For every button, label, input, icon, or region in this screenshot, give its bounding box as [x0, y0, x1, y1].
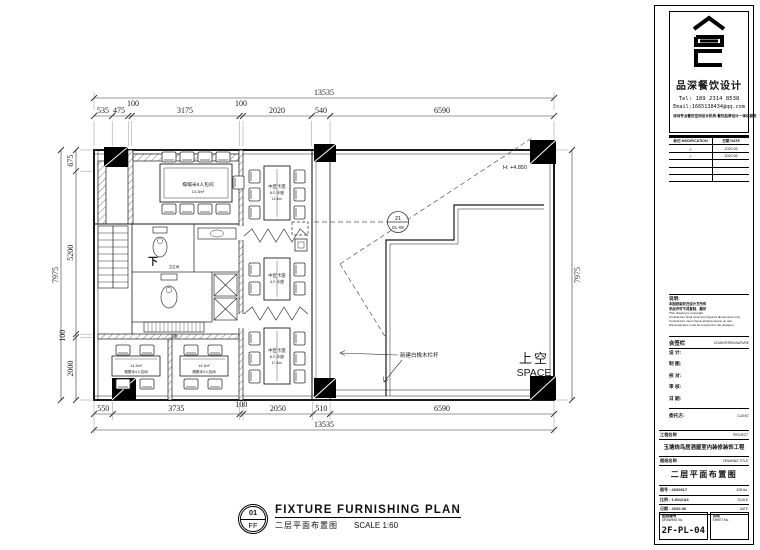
caption-number: 01: [241, 507, 264, 519]
meta-rows: 图号 : 2020617 JOB No. 比例 : 1:60@A3 SCALE …: [659, 485, 749, 515]
svg-text:14.3m²: 14.3m²: [198, 364, 211, 368]
project-section: 工程名称 PROJECT 玉塘烧鸟居酒屋室内装修装饰工程: [659, 430, 749, 454]
countersignature-bar: 会签栏 COUNTERSIGNATURE: [669, 336, 749, 349]
drawing-number-box: 图纸编号 DRAWING No. 2F-PL-04: [659, 512, 708, 540]
svg-text:中区卡座: 中区卡座: [268, 183, 286, 190]
svg-text:2020: 2020: [269, 106, 285, 115]
svg-text:中区卡座: 中区卡座: [268, 347, 286, 354]
svg-text:3735: 3735: [168, 404, 184, 413]
job-number-row: 图号 : 2020617 JOB No.: [659, 486, 749, 496]
detail-reference-bubble: 01 FF: [238, 504, 268, 534]
curtain-divider: [244, 307, 308, 320]
sign-field: 设 计:: [669, 350, 749, 361]
caption-subtitle: 二层平面布置图: [275, 520, 338, 531]
balloon-number: 21: [395, 216, 401, 222]
revision-row: △ 2020.05: [669, 145, 749, 152]
revision-row: △ 2020.06: [669, 153, 749, 160]
svg-text:2050: 2050: [270, 404, 286, 413]
revision-col-date: 日期 DATE: [713, 139, 749, 144]
revision-row: [669, 160, 749, 167]
svg-text:100: 100: [235, 99, 247, 108]
drawing-title-value: 二层平面布置图: [659, 465, 749, 483]
corridor-label: 走廊: [170, 334, 178, 339]
notes-block: 说明: 本图纸版权归设计方所有 未经许可不得复制、翻印 This drawing…: [669, 294, 749, 327]
void-label-cn: 上空: [519, 351, 549, 366]
booth-strip: 中区卡座 6人卡座 14.3m² 中区卡座 4人卡座 中区卡座 6人卡座 17.…: [244, 166, 308, 384]
caption-title: FIXTURE FURNISHING PLAN: [275, 504, 461, 518]
sheet-number-box: 页码 SHEET No.: [710, 512, 749, 540]
svg-text:17.3m²: 17.3m²: [272, 361, 283, 365]
svg-text:100: 100: [235, 400, 247, 409]
svg-text:3175: 3175: [177, 106, 193, 115]
height-label: H: +4.850: [503, 165, 527, 171]
svg-text:榻榻米4人包间: 榻榻米4人包间: [192, 369, 216, 374]
sign-field: 审 核:: [669, 384, 749, 395]
company-name: 品深餐饮设计: [670, 77, 748, 92]
svg-text:550: 550: [97, 404, 109, 413]
drawing-title-label: 图纸名称: [660, 458, 677, 464]
company-slogan: 深圳专业餐饮空间设计机构·餐饮品牌设计一体化服务: [673, 113, 745, 119]
svg-text:榻榻米4人包间: 榻榻米4人包间: [124, 369, 148, 374]
svg-text:中区卡座: 中区卡座: [268, 272, 286, 279]
caption-floor: FF: [241, 520, 264, 531]
brand-box: 品深餐饮设计 Tel: 189 2314 8538 Email:16651384…: [669, 11, 749, 133]
railing-note: 新建白橡木栏杆: [400, 351, 439, 359]
sign-field: 日 期:: [669, 396, 749, 407]
stair-down-label: 下: [148, 256, 158, 268]
client-row: 委托方: CLIENT: [669, 408, 749, 422]
company-email: Email:1665138434@qq.com: [670, 104, 748, 110]
title-block: 品深餐饮设计 Tel: 189 2314 8538 Email:16651384…: [654, 5, 754, 545]
svg-text:6590: 6590: [434, 106, 450, 115]
void-label-en: SPACE: [517, 367, 552, 379]
project-label: 工程名称: [660, 432, 677, 438]
svg-text:14.3m²: 14.3m²: [130, 364, 143, 368]
scale-row: 比例 : 1:60@A3 SCALE: [659, 496, 749, 506]
void-area: 21 DL-08 H: +4.850 上空 SPACE 新建白橡木栏杆: [314, 138, 551, 382]
drawing-title-section: 图纸名称 DRAWING TITLE 二层平面布置图: [659, 456, 749, 483]
revision-row: [669, 175, 749, 182]
svg-text:6人卡座: 6人卡座: [270, 353, 284, 359]
wc-label: 卫生间: [169, 264, 180, 269]
drawing-number: 2F-PL-04: [660, 526, 707, 536]
company-tel: Tel: 189 2314 8538: [670, 96, 748, 102]
floor-plan: 13535 535 475 100 3175 100 2020 540 6590…: [52, 76, 652, 536]
dim-right-total: 7975: [573, 267, 582, 283]
drawing-number-section: 图纸编号 DRAWING No. 2F-PL-04 页码 SHEET No.: [659, 512, 749, 540]
svg-text:100: 100: [127, 99, 139, 108]
dim-bottom-total: 13535: [314, 420, 334, 429]
bathroom-zone: 下 卫生间 走廊: [98, 224, 239, 339]
svg-text:510: 510: [315, 404, 327, 413]
caption-scale: SCALE 1:60: [354, 521, 398, 530]
drawing-sheet: 13535 535 475 100 3175 100 2020 540 6590…: [0, 0, 760, 550]
company-logo-icon: [670, 15, 748, 76]
sign-field: 制 图:: [669, 361, 749, 372]
svg-text:540: 540: [315, 106, 327, 115]
note-line: Discrepancies must be reported to the de…: [669, 323, 749, 327]
revision-row: [669, 168, 749, 175]
svg-text:14.3m²: 14.3m²: [272, 197, 283, 201]
svg-text:675: 675: [66, 155, 75, 167]
revision-table: 标记 MODIFICATION 日期 DATE △ 2020.05 △ 2020…: [669, 135, 749, 182]
drawing-caption: 01 FF FIXTURE FURNISHING PLAN 二层平面布置图 SC…: [238, 504, 461, 534]
svg-text:535: 535: [97, 106, 109, 115]
revision-col-mark: 标记 MODIFICATION: [669, 138, 713, 144]
svg-text:475: 475: [113, 106, 125, 115]
svg-text:6590: 6590: [434, 404, 450, 413]
room-area: 14.3m²: [192, 189, 205, 194]
room-label: 榻榻米8人包间: [182, 181, 214, 188]
project-name: 玉塘烧鸟居酒屋室内装修装饰工程: [659, 439, 749, 454]
balloon-ref: DL-08: [392, 225, 404, 230]
leader-lines: [340, 351, 402, 383]
svg-text:5200: 5200: [66, 245, 75, 261]
svg-text:6人卡座: 6人卡座: [270, 189, 284, 195]
dim-left-total: 7975: [52, 267, 60, 283]
sign-field: 校 对:: [669, 373, 749, 384]
svg-text:2000: 2000: [66, 361, 75, 377]
svg-text:4人卡座: 4人卡座: [270, 278, 284, 284]
svg-text:100: 100: [58, 330, 67, 342]
dim-top-total: 13535: [314, 88, 334, 97]
signature-fields: 设 计: 制 图: 校 对: 审 核: 日 期:: [669, 350, 749, 407]
